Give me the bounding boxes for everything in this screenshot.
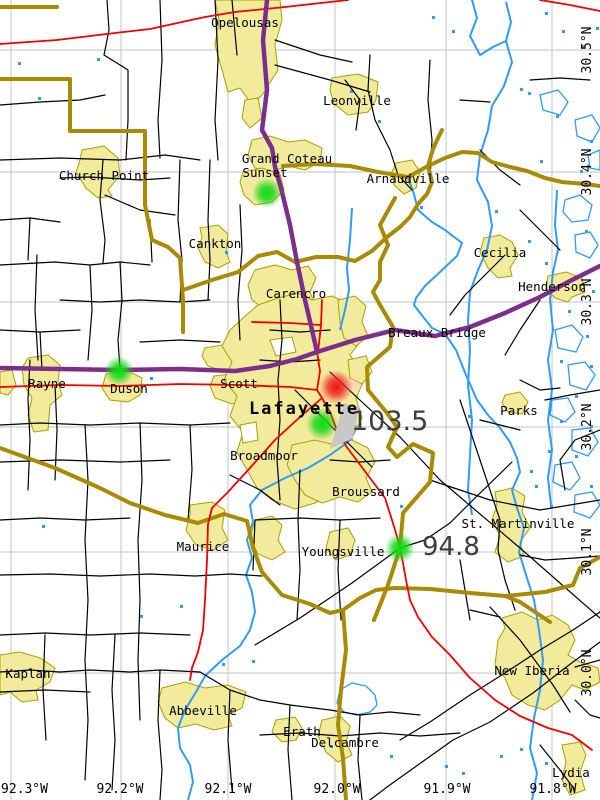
pond (150, 377, 153, 380)
pond (545, 262, 548, 265)
pond (432, 16, 435, 19)
longitude-label: 91.9°W (424, 782, 471, 797)
water-body (553, 462, 580, 490)
road-minor (158, 0, 162, 158)
city-label-broadmoor: Broadmoor (230, 448, 298, 463)
road-minor (275, 40, 352, 62)
pond (252, 660, 255, 663)
radio-coverage-map: OpelousasLeonvilleChurch PointGrand Cote… (0, 0, 600, 800)
city-label-leonville: Leonville (323, 93, 391, 108)
river (470, 0, 511, 55)
road-minor (0, 518, 130, 520)
pond (222, 663, 225, 666)
pond (528, 240, 531, 243)
pond (585, 230, 588, 233)
frequency-label[interactable]: 94.8 (422, 532, 480, 562)
city-label-lafayette: Lafayette (249, 399, 359, 419)
pond (548, 450, 551, 453)
latitude-label: 30.5°N (580, 27, 595, 74)
water-body (550, 398, 575, 422)
latitude-label: 30.2°N (580, 404, 595, 451)
pond (140, 615, 143, 618)
road-minor (112, 635, 115, 790)
latitude-label: 30.0°N (580, 650, 595, 697)
pond (586, 335, 589, 338)
road-minor (575, 700, 600, 718)
road-minor (520, 210, 560, 250)
river (548, 190, 558, 505)
road-minor (140, 340, 220, 342)
water-body (540, 90, 568, 115)
road-minor (545, 390, 600, 400)
urban-area-hole (240, 422, 258, 443)
road-minor (138, 423, 142, 720)
road-minor (450, 255, 505, 315)
city-label-youngsville: Youngsville (302, 544, 385, 559)
city-label-cecilia: Cecilia (474, 245, 527, 260)
latitude-label: 30.1°N (580, 529, 595, 576)
pond (520, 88, 523, 91)
city-label-church-point: Church Point (59, 168, 149, 183)
pond (560, 360, 563, 363)
urban-area (0, 370, 16, 395)
longitude-label: 92.3°W (1, 782, 48, 797)
city-label-carencro: Carencro (266, 286, 326, 301)
pond (180, 605, 183, 608)
map-canvas: OpelousasLeonvilleChurch PointGrand Cote… (0, 0, 600, 800)
pond (562, 30, 565, 33)
pond (545, 762, 548, 765)
road-minor (530, 78, 590, 80)
pond (378, 120, 381, 123)
city-label-cankton: Cankton (189, 236, 242, 251)
city-label-delcambre: Delcambre (311, 735, 379, 750)
pond (97, 58, 100, 61)
city-label-abbeville: Abbeville (169, 703, 237, 718)
pond (495, 210, 498, 213)
city-label-duson: Duson (110, 381, 148, 396)
road-minor (43, 635, 46, 740)
pond (545, 12, 548, 15)
road-minor (0, 574, 262, 576)
city-label-kaplan: Kaplan (5, 666, 50, 681)
pond (575, 455, 578, 458)
longitude-label: 92.2°W (97, 782, 144, 797)
road-minor (105, 195, 175, 215)
city-label-sunset: Sunset (242, 165, 287, 180)
pond (420, 206, 423, 209)
pond (462, 772, 465, 775)
pond (42, 525, 45, 528)
road-us-highway (338, 610, 346, 800)
road-minor (88, 265, 92, 360)
pond (500, 755, 503, 758)
road-minor (0, 633, 190, 635)
city-label-new-iberia: New Iberia (494, 663, 569, 678)
pond (590, 140, 593, 143)
pond (540, 160, 543, 163)
pond (520, 748, 523, 751)
longitude-label: 92.1°W (205, 782, 252, 797)
pond (225, 251, 228, 254)
pond (568, 310, 571, 313)
city-label-grand-coteau: Grand Coteau (242, 151, 332, 166)
pond (400, 505, 403, 508)
city-label-rayne: Rayne (28, 376, 66, 391)
city-label-scott: Scott (220, 376, 258, 391)
water-body (563, 195, 592, 222)
latitude-label: 30.4°N (580, 149, 595, 196)
road-minor (515, 500, 600, 510)
longitude-label: 91.8°W (530, 782, 577, 797)
road-state-highway (540, 0, 600, 11)
longitude-label: 92.0°W (314, 782, 361, 797)
road-minor (0, 460, 170, 462)
road-minor (104, 0, 128, 160)
station-marker-green[interactable] (252, 178, 282, 208)
road-minor (460, 560, 470, 620)
pond (18, 62, 21, 65)
pond (390, 755, 393, 758)
road-minor (85, 425, 88, 780)
pond (590, 485, 593, 488)
city-label-broussard: Broussard (332, 484, 400, 499)
urban-area (242, 98, 262, 128)
water-body (575, 115, 600, 142)
frequency-label[interactable]: 103.5 (351, 406, 428, 437)
city-label-arnaudville: Arnaudville (367, 171, 450, 186)
road-minor (520, 380, 560, 390)
pond (590, 365, 593, 368)
pond (38, 97, 41, 100)
pond (452, 30, 455, 33)
city-label-henderson: Henderson (518, 279, 586, 294)
road-minor (0, 95, 105, 105)
road-minor (460, 100, 490, 102)
water-body (574, 492, 600, 518)
city-label-lydia: Lydia (552, 765, 590, 780)
river (408, 178, 543, 800)
latitude-label: 30.3°N (580, 279, 595, 326)
city-label-parks: Parks (500, 403, 538, 418)
road-minor (35, 255, 38, 360)
city-label-st-martinville: St. Martinville (462, 516, 575, 531)
water-body (555, 325, 583, 352)
road-minor (28, 218, 30, 260)
city-label-maurice: Maurice (177, 539, 230, 554)
road-minor (0, 262, 150, 265)
pond (596, 27, 599, 30)
pond (445, 765, 448, 768)
city-label-breaux-bridge: Breaux Bridge (388, 325, 486, 340)
pond (528, 92, 531, 95)
station-marker-green[interactable] (385, 533, 415, 563)
city-label-opelousas: Opelousas (211, 15, 279, 30)
pond (530, 470, 533, 473)
water-body (575, 232, 598, 258)
pond (556, 115, 559, 118)
pond (575, 395, 578, 398)
pond (468, 415, 471, 418)
pond (560, 420, 563, 423)
pond (535, 485, 538, 488)
